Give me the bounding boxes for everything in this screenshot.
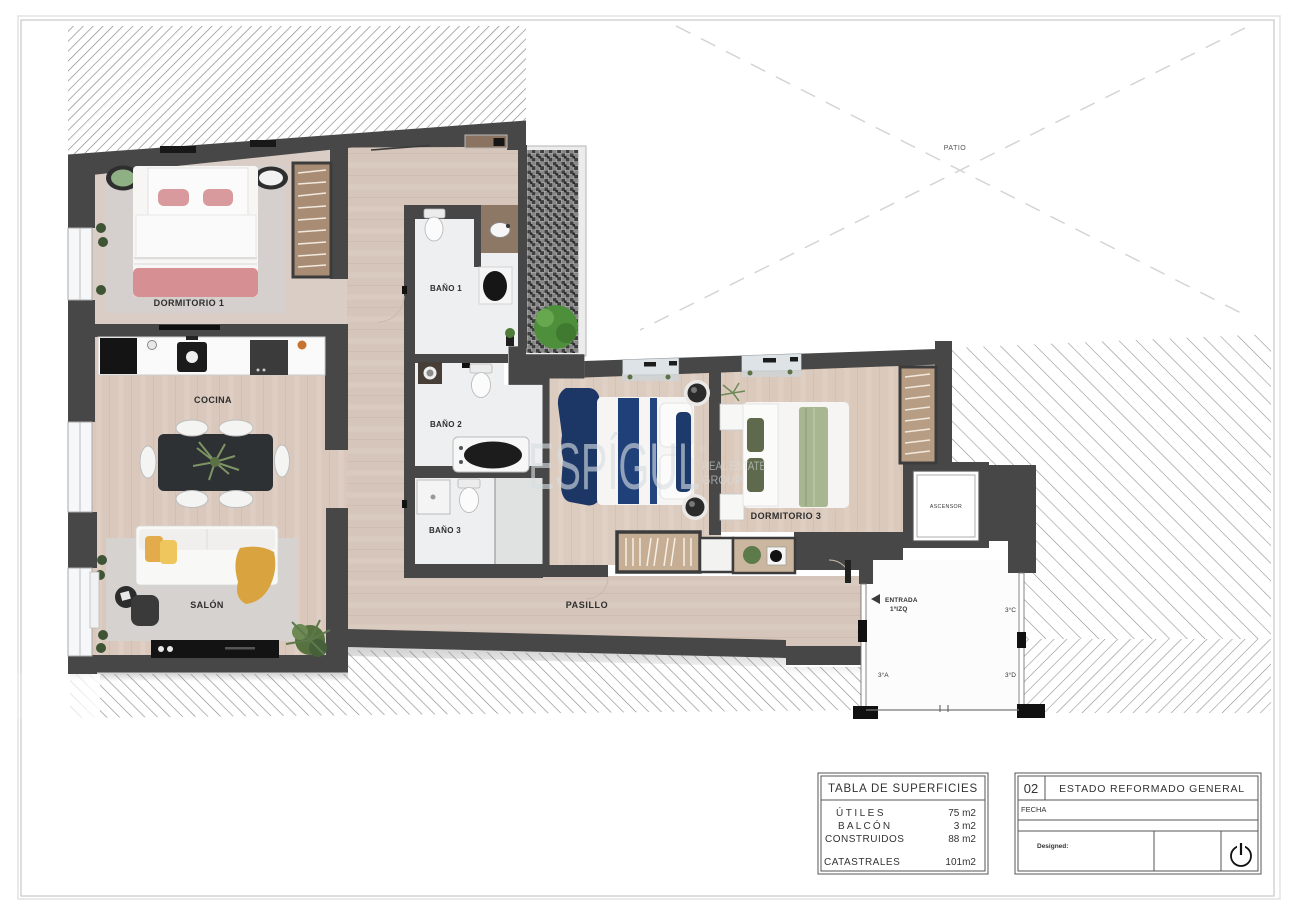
svg-text:75 m2: 75 m2 [948, 808, 976, 819]
svg-text:BALCÓN: BALCÓN [838, 819, 892, 832]
svg-text:3°A: 3°A [878, 671, 889, 679]
svg-text:88 m2: 88 m2 [948, 834, 976, 845]
svg-text:ÚTILES: ÚTILES [836, 806, 886, 819]
svg-text:ESTADO REFORMADO GENERAL: ESTADO REFORMADO GENERAL [1059, 783, 1245, 795]
svg-text:DORMITORIO 1: DORMITORIO 1 [154, 298, 225, 308]
svg-text:SALÓN: SALÓN [190, 599, 224, 610]
svg-text:ASCENSOR: ASCENSOR [930, 504, 962, 510]
svg-text:3 m2: 3 m2 [954, 821, 977, 832]
svg-text:Designed:: Designed: [1037, 843, 1068, 850]
svg-text:DORMITORIO 3: DORMITORIO 3 [751, 511, 822, 521]
svg-text:BAÑO 1: BAÑO 1 [430, 284, 462, 293]
svg-text:3°C: 3°C [1005, 606, 1016, 614]
svg-text:COCINA: COCINA [194, 395, 232, 405]
svg-text:REAL ESTATE: REAL ESTATE [702, 459, 766, 473]
svg-text:PASILLO: PASILLO [566, 600, 609, 610]
svg-text:PATIO: PATIO [944, 145, 967, 152]
svg-text:02: 02 [1024, 781, 1038, 796]
svg-text:TABLA DE SUPERFICIES: TABLA DE SUPERFICIES [828, 783, 978, 795]
svg-text:CONSTRUIDOS: CONSTRUIDOS [825, 834, 904, 845]
svg-text:BAÑO 3: BAÑO 3 [429, 526, 461, 535]
svg-text:GROUP: GROUP [702, 473, 742, 487]
svg-text:CATASTRALES: CATASTRALES [824, 857, 900, 868]
svg-text:®: ® [699, 444, 707, 455]
svg-text:101m2: 101m2 [945, 857, 976, 868]
svg-text:3°D: 3°D [1005, 671, 1016, 679]
svg-text:ESPÍGUL: ESPÍGUL [528, 429, 700, 503]
svg-text:FECHA: FECHA [1021, 805, 1046, 814]
svg-text:ENTRADA: ENTRADA [885, 597, 918, 604]
svg-text:1ºIZQ: 1ºIZQ [890, 606, 908, 613]
svg-text:BAÑO 2: BAÑO 2 [430, 420, 462, 429]
